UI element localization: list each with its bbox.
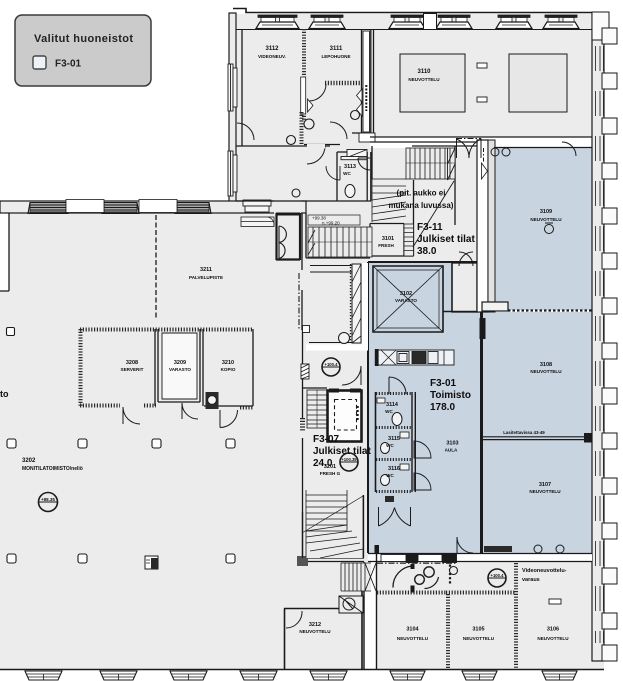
svg-text:Toimisto: Toimisto [430,390,471,401]
svg-text:3116: 3116 [388,466,400,472]
svg-text:LEPOHUONE: LEPOHUONE [321,54,350,59]
svg-text:3212: 3212 [309,622,321,628]
svg-text:3208: 3208 [126,360,138,366]
svg-text:+88.35: +88.35 [41,497,55,502]
svg-text:NEUVOTTELU: NEUVOTTELU [408,77,440,82]
svg-text:MONITILATOIMISTO/neliö: MONITILATOIMISTO/neliö [22,466,83,472]
svg-text:F3-11: F3-11 [417,222,443,233]
svg-text:FRESH: FRESH [378,243,394,248]
svg-text:Lasitettavissa 43-49: Lasitettavissa 43-49 [503,430,545,435]
svg-text:KOPIO: KOPIO [221,367,236,372]
svg-text:3113: 3113 [344,164,356,170]
svg-text:n.+99.20: n.+99.20 [322,221,340,226]
svg-text:VIDEONEUV.: VIDEONEUV. [258,54,286,59]
svg-text:3106: 3106 [547,627,559,633]
svg-text:NEUVOTTELU: NEUVOTTELU [397,636,429,641]
svg-text:+100.4: +100.4 [491,573,505,578]
svg-text:FRESH G: FRESH G [320,471,341,476]
svg-text:PALVELUPISTE: PALVELUPISTE [189,275,223,280]
svg-text:WC: WC [386,443,394,448]
svg-text:3104: 3104 [406,627,419,633]
svg-text:3107: 3107 [539,482,551,488]
svg-text:NEUVOTTELU: NEUVOTTELU [463,636,495,641]
svg-text:3103: 3103 [446,441,458,447]
svg-text:NEUVOTTELU: NEUVOTTELU [537,636,569,641]
svg-text:3209: 3209 [174,360,186,366]
svg-text:Julkiset tilat: Julkiset tilat [313,446,371,457]
svg-text:Julkiset tilat: Julkiset tilat [417,234,475,245]
svg-text:WC: WC [385,409,393,414]
svg-text:NEUVOTTELU: NEUVOTTELU [530,369,562,374]
svg-text:3102: 3102 [400,291,412,297]
svg-text:Valitut huoneistot: Valitut huoneistot [34,33,133,45]
svg-text:NEUVOTTELU: NEUVOTTELU [529,489,561,494]
svg-text:AULA: AULA [445,448,458,453]
svg-text:3201: 3201 [324,464,336,470]
svg-text:3110: 3110 [417,69,431,75]
svg-text:3210: 3210 [222,360,234,366]
svg-text:3202: 3202 [22,458,36,464]
svg-text:3112: 3112 [265,46,279,52]
svg-text:NEUVOTTELU: NEUVOTTELU [530,217,562,222]
svg-text:mukana luvussa): mukana luvussa) [389,201,454,210]
svg-text:178.0: 178.0 [430,402,455,413]
svg-text:F3-01: F3-01 [430,378,457,389]
svg-text:F3-07: F3-07 [313,434,340,445]
svg-text:Videoneuvottelu-: Videoneuvottelu- [522,568,567,574]
svg-text:3109: 3109 [540,209,552,215]
svg-text:(pit. aukko ei: (pit. aukko ei [397,189,446,198]
svg-text:3211: 3211 [200,267,212,273]
svg-text:3115: 3115 [388,436,400,442]
svg-text:3111: 3111 [330,46,343,52]
svg-text:VARASTO: VARASTO [169,367,191,372]
svg-text:+100.35: +100.35 [341,457,357,462]
svg-text:to: to [0,389,9,399]
svg-text:varaus: varaus [522,577,540,583]
svg-text:WC: WC [343,171,351,176]
svg-text:+100.4: +100.4 [325,362,339,367]
svg-text:F3-01: F3-01 [55,59,82,70]
svg-text:NEUVOTTELU: NEUVOTTELU [299,629,331,634]
svg-text:WC: WC [386,473,394,478]
svg-text:3114: 3114 [386,402,399,408]
svg-text:VARASTO: VARASTO [395,298,417,303]
svg-text:38.0: 38.0 [417,246,437,257]
svg-text:3105: 3105 [472,627,484,633]
svg-text:3108: 3108 [540,362,552,368]
svg-text:3101: 3101 [382,236,394,242]
svg-text:SERVERIT: SERVERIT [121,367,144,372]
